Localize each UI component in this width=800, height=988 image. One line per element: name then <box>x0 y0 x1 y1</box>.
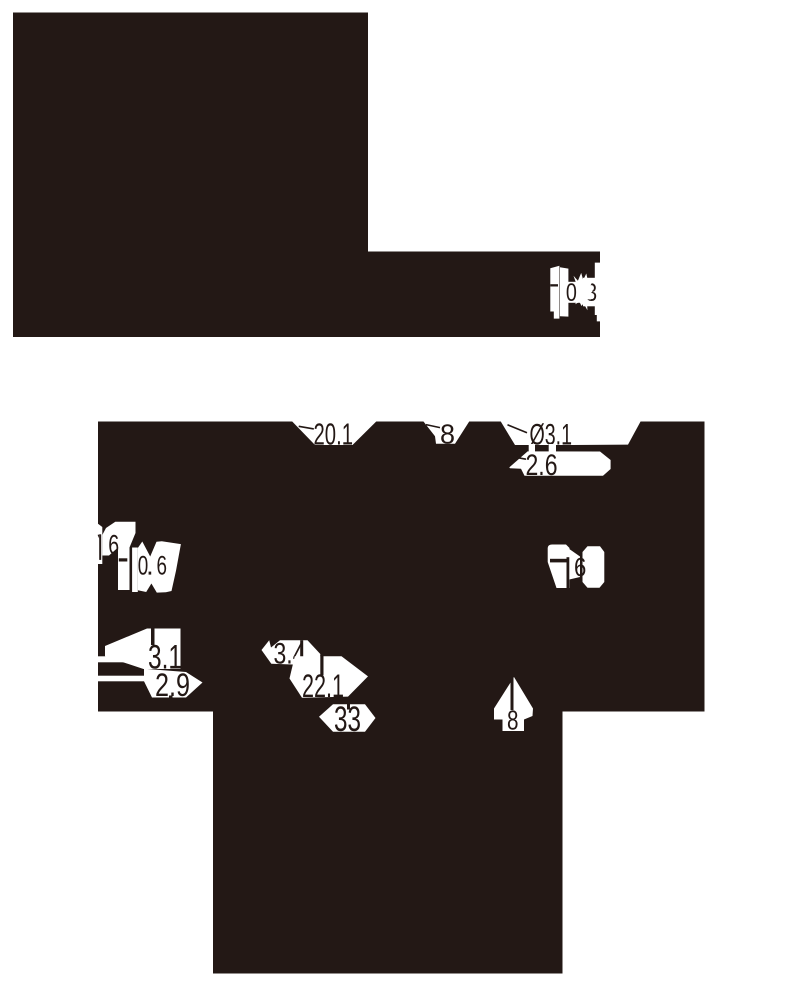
svg-text:20.1: 20.1 <box>314 418 354 452</box>
svg-text:33: 33 <box>334 700 361 739</box>
svg-text:0: 0 <box>138 551 149 581</box>
svg-text:6: 6 <box>574 554 586 582</box>
svg-text:8: 8 <box>440 418 455 449</box>
svg-text:6: 6 <box>157 551 168 581</box>
svg-text:0: 0 <box>566 279 577 307</box>
svg-text:6: 6 <box>108 529 119 560</box>
svg-text:8: 8 <box>507 704 519 735</box>
svg-text:2.6: 2.6 <box>526 449 558 482</box>
svg-text:22.1: 22.1 <box>302 668 344 704</box>
